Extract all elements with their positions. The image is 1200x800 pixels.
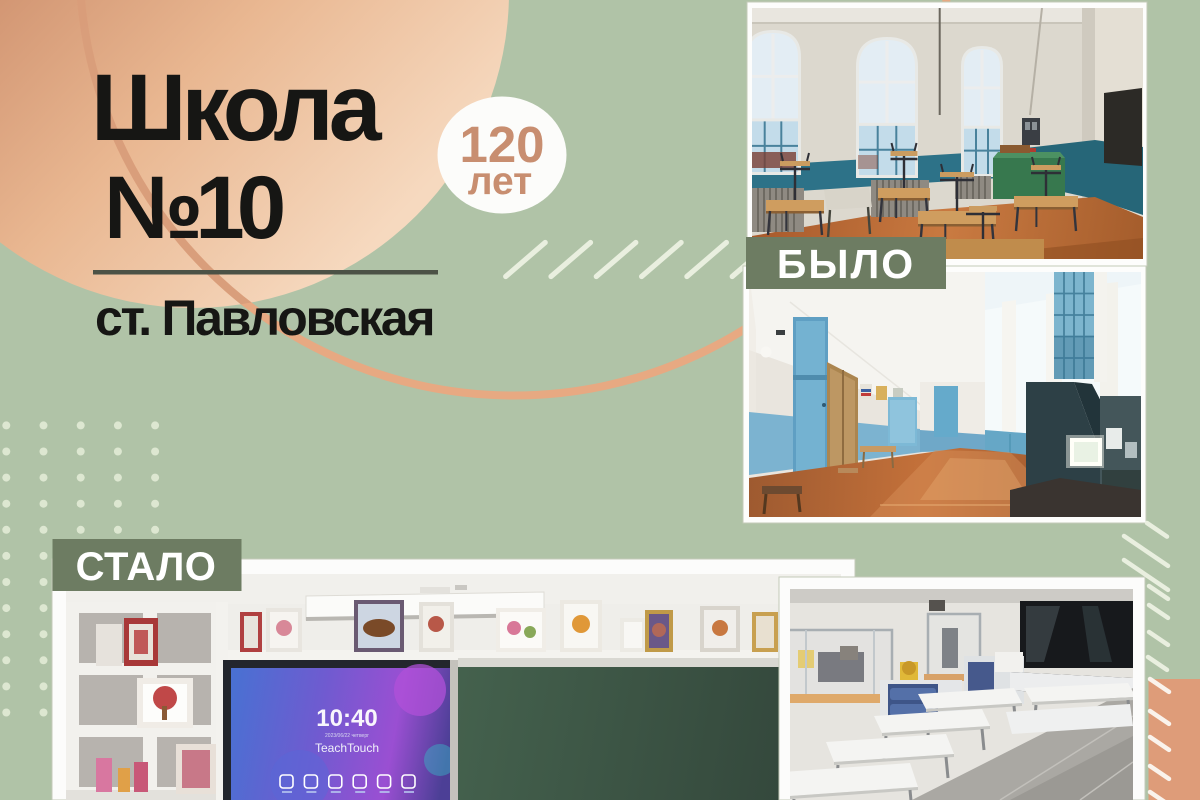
svg-text:БЫЛО: БЫЛО (777, 241, 915, 287)
svg-text:10:40: 10:40 (316, 705, 377, 732)
svg-text:TeachTouch: TeachTouch (315, 741, 379, 755)
svg-text:СТАЛО: СТАЛО (76, 545, 217, 589)
svg-text:№10: №10 (104, 157, 283, 257)
svg-text:Школа: Школа (91, 55, 383, 161)
svg-text:ст. Павловская: ст. Павловская (95, 290, 433, 346)
svg-text:лет: лет (468, 160, 533, 203)
svg-text:2023/06/22 четверг: 2023/06/22 четверг (325, 733, 369, 739)
